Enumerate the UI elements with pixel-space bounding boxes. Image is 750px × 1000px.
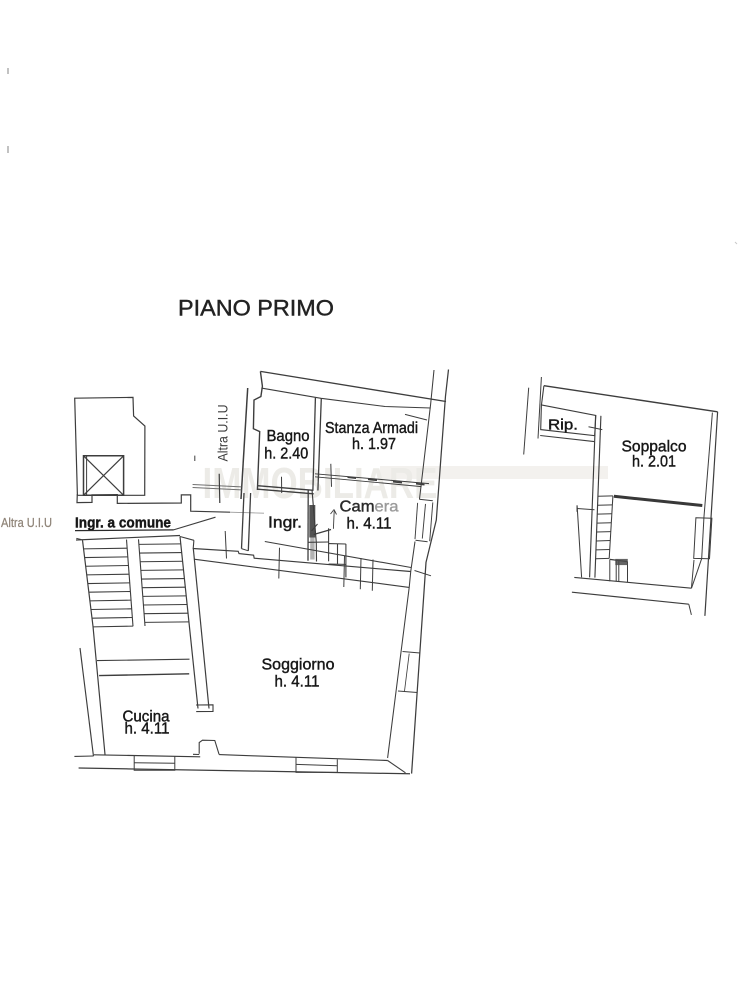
svg-text:h. 4.11: h. 4.11 (347, 516, 392, 533)
svg-text:Stanza Armadi: Stanza Armadi (325, 420, 418, 437)
svg-text:h. 2.40: h. 2.40 (264, 445, 308, 462)
svg-text:h. 2.01: h. 2.01 (632, 454, 676, 471)
svg-text:Soggiorno: Soggiorno (262, 657, 335, 674)
svg-text:h. 4.11: h. 4.11 (275, 674, 320, 691)
svg-text:Ingr. a comune: Ingr. a comune (75, 514, 171, 531)
svg-text:IMMOBILIARE: IMMOBILIARE (203, 459, 438, 508)
svg-text:Rip.: Rip. (548, 417, 578, 434)
svg-text:Camera: Camera (340, 499, 399, 516)
svg-text:Altra U.I.U: Altra U.I.U (1, 515, 52, 530)
svg-text:Altra U.I.U: Altra U.I.U (216, 405, 231, 462)
svg-text:PIANO PRIMO: PIANO PRIMO (178, 296, 334, 321)
svg-text:h. 1.97: h. 1.97 (352, 436, 396, 453)
svg-text:h. 4.11: h. 4.11 (125, 721, 170, 738)
svg-text:Ingr.: Ingr. (268, 515, 302, 532)
svg-text:Bagno: Bagno (267, 428, 310, 445)
